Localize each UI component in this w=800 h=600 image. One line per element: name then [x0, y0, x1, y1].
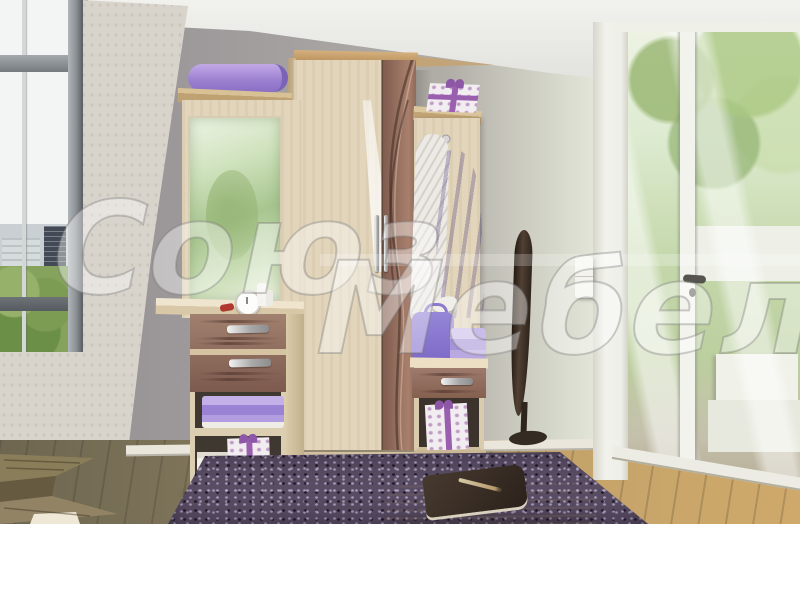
drawer-handle-top [227, 325, 269, 334]
drawer-ridge [196, 320, 280, 323]
caption-strip: Стиль 3 капучино глянец 1.6×2.09×0.44 Ко… [0, 524, 800, 600]
gift-box-niche [425, 403, 469, 451]
cosmetic-tube [266, 290, 273, 306]
wood-steps [0, 446, 122, 524]
hallway-room-photo: Союз Мебель [0, 0, 800, 524]
gift-bow [435, 400, 453, 411]
shelf-board [190, 428, 286, 436]
drawer-ridge [196, 337, 280, 340]
window-bar-bottom [0, 297, 70, 311]
door-keyhole [689, 288, 696, 297]
gift-bow [445, 79, 464, 90]
drawer-ridge [416, 390, 482, 393]
window-bar-top [0, 55, 70, 72]
drawer-ridge [196, 342, 276, 345]
glass-door-top-frame [612, 22, 800, 32]
bench-drawer-handle [441, 378, 473, 385]
gift-bow [239, 434, 257, 445]
drawer-handle-bottom [229, 359, 271, 368]
drawer-divider [190, 349, 286, 355]
drawer-ridge [196, 378, 276, 381]
door-handle [683, 274, 707, 284]
rolled-towel [188, 64, 288, 92]
purple-basket [412, 312, 454, 364]
watermark-band [320, 254, 800, 266]
product-card: Союз Мебель Стиль 3 капучино глянец 1.6×… [0, 0, 800, 600]
drawer-ridge [416, 373, 482, 376]
mirror-reflection [206, 170, 258, 260]
drawer-ridge [196, 372, 280, 375]
towel-stack [202, 396, 284, 428]
gift-box-top [426, 83, 480, 113]
door-frame-column [593, 22, 628, 480]
bench-top [410, 357, 488, 368]
folded-towels [450, 328, 486, 362]
